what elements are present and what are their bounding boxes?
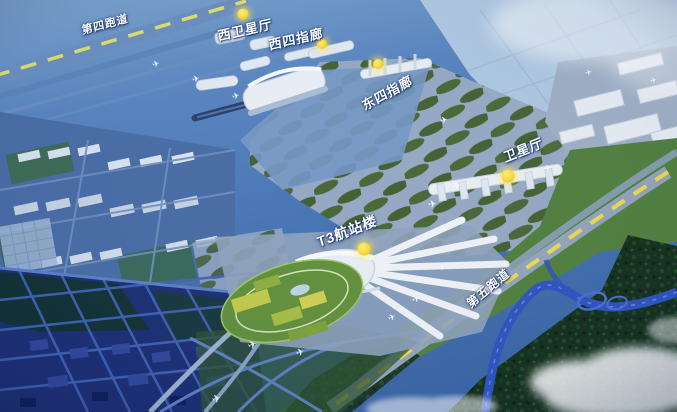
rendering-scene: ✈ ✈ ✈ ✈ ✈ ✈ ✈ ✈ ✈ ✈ ✈ ✈ ✈ ✈ ✈ ✈ <box>0 0 677 412</box>
marker-dot-t3-terminal <box>358 243 371 256</box>
airport-masterplan-rendering: ✈ ✈ ✈ ✈ ✈ ✈ ✈ ✈ ✈ ✈ ✈ ✈ ✈ ✈ ✈ ✈ <box>0 0 677 412</box>
photo-vignette <box>0 0 677 412</box>
marker-dot-east-pier-4 <box>373 59 383 69</box>
marker-dot-satellite-hall <box>502 170 515 183</box>
